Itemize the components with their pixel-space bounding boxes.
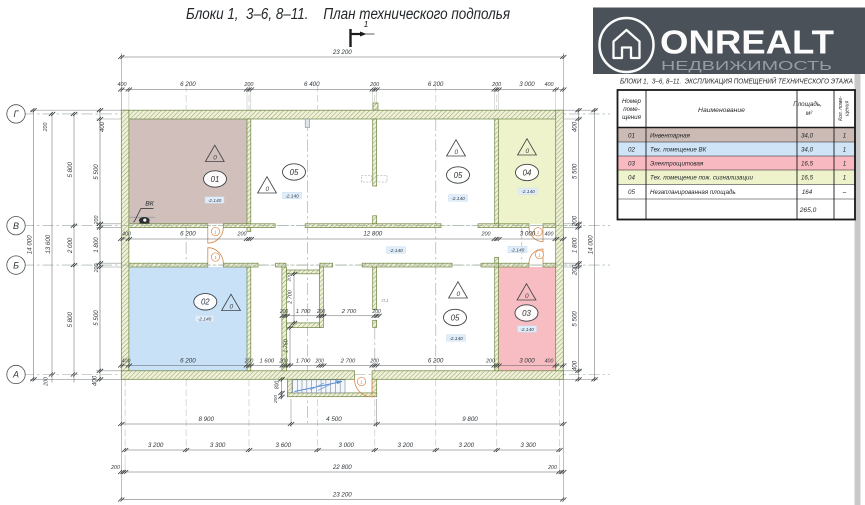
svg-text:400: 400	[122, 358, 131, 364]
svg-text:0: 0	[265, 186, 269, 193]
svg-text:200: 200	[110, 465, 120, 471]
svg-text:200: 200	[571, 264, 578, 276]
svg-text:Тех. помещение пож. сигнализац: Тех. помещение пож. сигнализации	[650, 175, 753, 182]
svg-text:1 750: 1 750	[284, 339, 290, 353]
svg-text:0: 0	[525, 148, 529, 155]
svg-text:НЕДВИЖИМОСТЬ: НЕДВИЖИМОСТЬ	[661, 58, 832, 73]
svg-text:05: 05	[454, 171, 463, 180]
svg-text:05: 05	[628, 189, 635, 196]
svg-text:200: 200	[243, 82, 253, 88]
svg-text:Блоки 1, 3–6, 8–11. План т: Блоки 1, 3–6, 8–11. План технического по…	[186, 6, 510, 23]
svg-text:м²: м²	[806, 110, 813, 117]
svg-text:400: 400	[99, 121, 106, 132]
svg-text:200: 200	[369, 82, 379, 88]
svg-text:В: В	[13, 221, 19, 231]
svg-text:200: 200	[273, 395, 279, 404]
svg-text:3 600: 3 600	[276, 442, 292, 449]
svg-text:1: 1	[843, 146, 846, 153]
svg-text:04: 04	[523, 168, 532, 177]
svg-text:200: 200	[491, 82, 501, 88]
svg-text:Тех. помещение ВК: Тех. помещение ВК	[650, 146, 707, 153]
svg-text:200: 200	[44, 377, 50, 387]
svg-text:05: 05	[451, 313, 460, 322]
svg-text:0: 0	[454, 149, 458, 156]
svg-text:200: 200	[547, 465, 557, 471]
svg-text:2 700: 2 700	[341, 309, 357, 315]
svg-text:Площадь,: Площадь,	[793, 101, 822, 108]
svg-text:ONREALT: ONREALT	[660, 24, 834, 61]
svg-text:Кол. поме-: Кол. поме-	[838, 96, 844, 121]
svg-text:2 000: 2 000	[67, 237, 74, 254]
svg-text:А: А	[12, 370, 19, 380]
svg-text:3 200: 3 200	[148, 442, 164, 449]
svg-text:400: 400	[545, 232, 554, 238]
svg-text:ВК: ВК	[145, 201, 155, 208]
svg-text:4 500: 4 500	[326, 416, 342, 423]
svg-text:0: 0	[229, 304, 233, 311]
svg-text:2 700: 2 700	[340, 358, 356, 364]
svg-text:5 800: 5 800	[67, 311, 74, 327]
svg-text:5 500: 5 500	[93, 164, 100, 180]
svg-text:Номер: Номер	[622, 98, 642, 105]
svg-text:23 200: 23 200	[332, 49, 352, 56]
svg-text:БЛОКИ 1, 3–6, 8–11. ЭКСПЛИКА: БЛОКИ 1, 3–6, 8–11. ЭКСПЛИКАЦИЯ ПОМЕЩЕНИ…	[620, 77, 853, 86]
svg-text:13 600: 13 600	[45, 234, 52, 253]
svg-text:1 800: 1 800	[571, 237, 578, 253]
svg-text:200: 200	[237, 232, 247, 238]
svg-text:Электрощитовая: Электрощитовая	[650, 160, 704, 167]
svg-text:поме-: поме-	[623, 106, 640, 113]
svg-text:400: 400	[118, 82, 127, 88]
svg-text:5 500: 5 500	[571, 163, 578, 179]
svg-text:Б: Б	[13, 260, 19, 270]
svg-text:34,0: 34,0	[801, 146, 814, 153]
svg-text:-2.140: -2.140	[449, 336, 463, 342]
svg-text:400: 400	[571, 121, 578, 132]
svg-text:3 300: 3 300	[520, 442, 536, 449]
svg-text:Наименование: Наименование	[698, 107, 745, 114]
svg-text:1: 1	[843, 175, 846, 182]
svg-text:–: –	[842, 189, 847, 196]
svg-text:22 800: 22 800	[332, 464, 352, 471]
svg-text:0: 0	[525, 293, 529, 300]
svg-text:2 700: 2 700	[288, 290, 294, 305]
svg-text:1: 1	[843, 160, 846, 167]
svg-text:Незапланированная площадь: Незапланированная площадь	[650, 189, 736, 196]
svg-text:23 200: 23 200	[332, 492, 352, 499]
svg-text:200: 200	[316, 309, 326, 315]
svg-text:16,5: 16,5	[801, 160, 814, 167]
svg-text:02: 02	[201, 298, 210, 307]
svg-text:400: 400	[122, 232, 131, 238]
svg-text:14 000: 14 000	[587, 235, 594, 254]
svg-text:200: 200	[571, 215, 578, 227]
svg-text:01: 01	[628, 132, 635, 139]
svg-text:03: 03	[522, 309, 531, 318]
svg-text:200: 200	[244, 358, 254, 364]
svg-text:200: 200	[287, 273, 293, 282]
svg-text:14 000: 14 000	[26, 235, 33, 254]
svg-text:8 900: 8 900	[198, 416, 214, 423]
svg-text:-2.140: -2.140	[520, 327, 534, 333]
svg-text:200: 200	[94, 264, 100, 274]
svg-text:400: 400	[92, 375, 99, 386]
svg-text:164: 164	[802, 189, 813, 196]
svg-text:0: 0	[213, 155, 217, 162]
svg-text:200: 200	[43, 123, 49, 133]
svg-text:щения: щения	[845, 101, 851, 117]
svg-text:200: 200	[371, 309, 381, 315]
svg-text:-2.140: -2.140	[389, 248, 403, 254]
svg-text:400: 400	[545, 82, 554, 88]
svg-text:-2.140: -2.140	[208, 198, 222, 204]
svg-text:16,5: 16,5	[801, 175, 814, 182]
svg-text:3 000: 3 000	[338, 442, 354, 449]
svg-text:265,0: 265,0	[799, 207, 817, 214]
svg-text:800: 800	[275, 381, 281, 390]
svg-text:3 300: 3 300	[210, 442, 226, 449]
svg-text:6 200: 6 200	[428, 81, 444, 88]
svg-text:-2.140: -2.140	[198, 316, 212, 322]
svg-text:200: 200	[315, 358, 325, 364]
svg-text:6 200: 6 200	[428, 357, 444, 364]
svg-text:1: 1	[843, 132, 846, 139]
svg-text:200: 200	[279, 309, 289, 315]
svg-text:200: 200	[481, 232, 491, 238]
svg-text:3 200: 3 200	[459, 442, 475, 449]
svg-text:щения: щения	[622, 114, 642, 121]
svg-text:1 600: 1 600	[260, 358, 275, 364]
svg-text:200: 200	[369, 358, 379, 364]
svg-text:05: 05	[290, 168, 299, 177]
svg-text:400: 400	[545, 358, 554, 364]
svg-text:5 500: 5 500	[93, 310, 100, 326]
svg-text:5 800: 5 800	[67, 161, 74, 177]
svg-text:03: 03	[628, 160, 635, 167]
svg-text:3 000: 3 000	[519, 357, 535, 364]
svg-text:400: 400	[571, 360, 578, 371]
svg-text:Инвентарная: Инвентарная	[650, 132, 691, 139]
svg-text:1 700: 1 700	[296, 358, 311, 364]
svg-text:34,0: 34,0	[801, 132, 814, 139]
svg-text:200: 200	[485, 358, 495, 364]
svg-text:3 000: 3 000	[519, 81, 535, 88]
svg-text:1 800: 1 800	[93, 237, 100, 253]
svg-text:200: 200	[94, 216, 100, 226]
svg-text:6 200: 6 200	[180, 81, 196, 88]
svg-text:0: 0	[456, 291, 460, 298]
svg-text:02: 02	[628, 146, 635, 153]
svg-text:9 800: 9 800	[462, 416, 478, 423]
svg-text:3 200: 3 200	[398, 442, 414, 449]
svg-text:6 400: 6 400	[304, 81, 320, 88]
svg-text:6 200: 6 200	[180, 231, 196, 238]
svg-text:1: 1	[364, 19, 369, 29]
svg-text:3 000: 3 000	[520, 231, 536, 238]
svg-text:Л.1: Л.1	[381, 298, 389, 303]
svg-text:-2.140: -2.140	[451, 196, 465, 202]
svg-text:04: 04	[628, 175, 635, 182]
svg-text:-2.140: -2.140	[285, 193, 299, 199]
svg-text:01: 01	[211, 175, 220, 184]
svg-text:1 700: 1 700	[296, 309, 311, 315]
svg-text:-2.140: -2.140	[521, 189, 535, 195]
svg-text:200: 200	[278, 358, 288, 364]
svg-text:-2.140: -2.140	[511, 247, 525, 253]
svg-text:5 500: 5 500	[571, 311, 578, 327]
svg-text:12 800: 12 800	[363, 231, 382, 238]
svg-text:6 200: 6 200	[180, 357, 196, 364]
